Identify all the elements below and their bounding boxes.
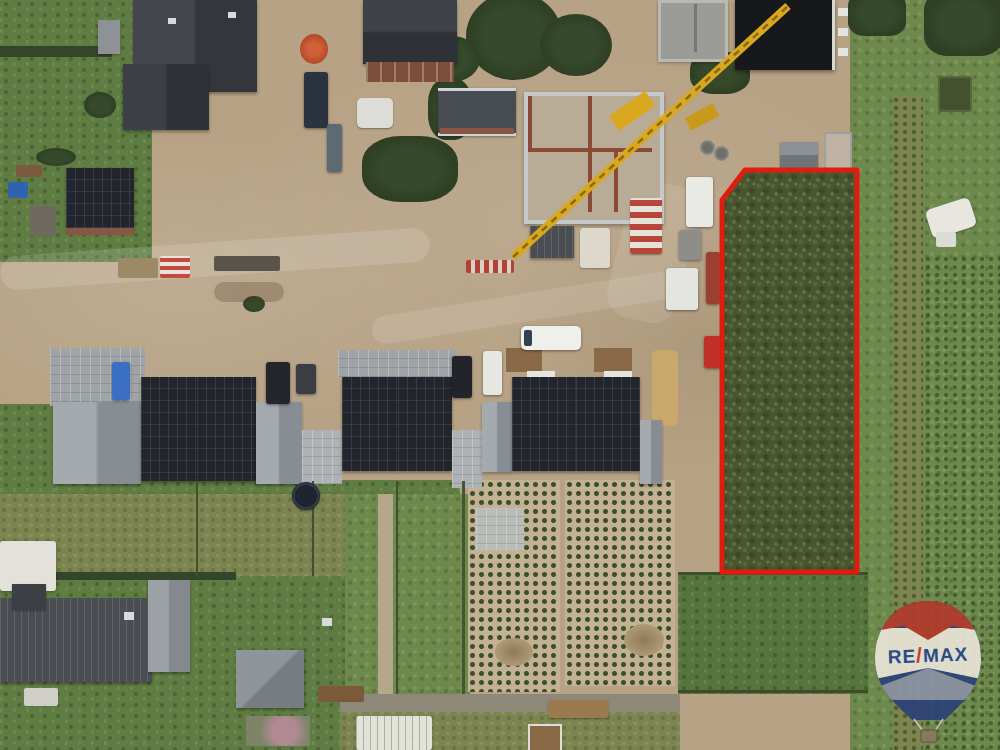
balloon-wordmark: RE/MAX (887, 642, 968, 668)
aerial-photo-scene: RE/MAX (0, 0, 1000, 750)
property-plot-outline (722, 170, 857, 572)
balloon-rope (935, 719, 943, 731)
remax-balloon-logo: RE/MAX (870, 596, 986, 742)
balloon-rope (914, 719, 923, 731)
crane-counterweight (685, 103, 720, 130)
overlay-graphics: RE/MAX (0, 0, 1000, 750)
balloon-basket (921, 730, 937, 742)
crane-truck (609, 91, 655, 131)
